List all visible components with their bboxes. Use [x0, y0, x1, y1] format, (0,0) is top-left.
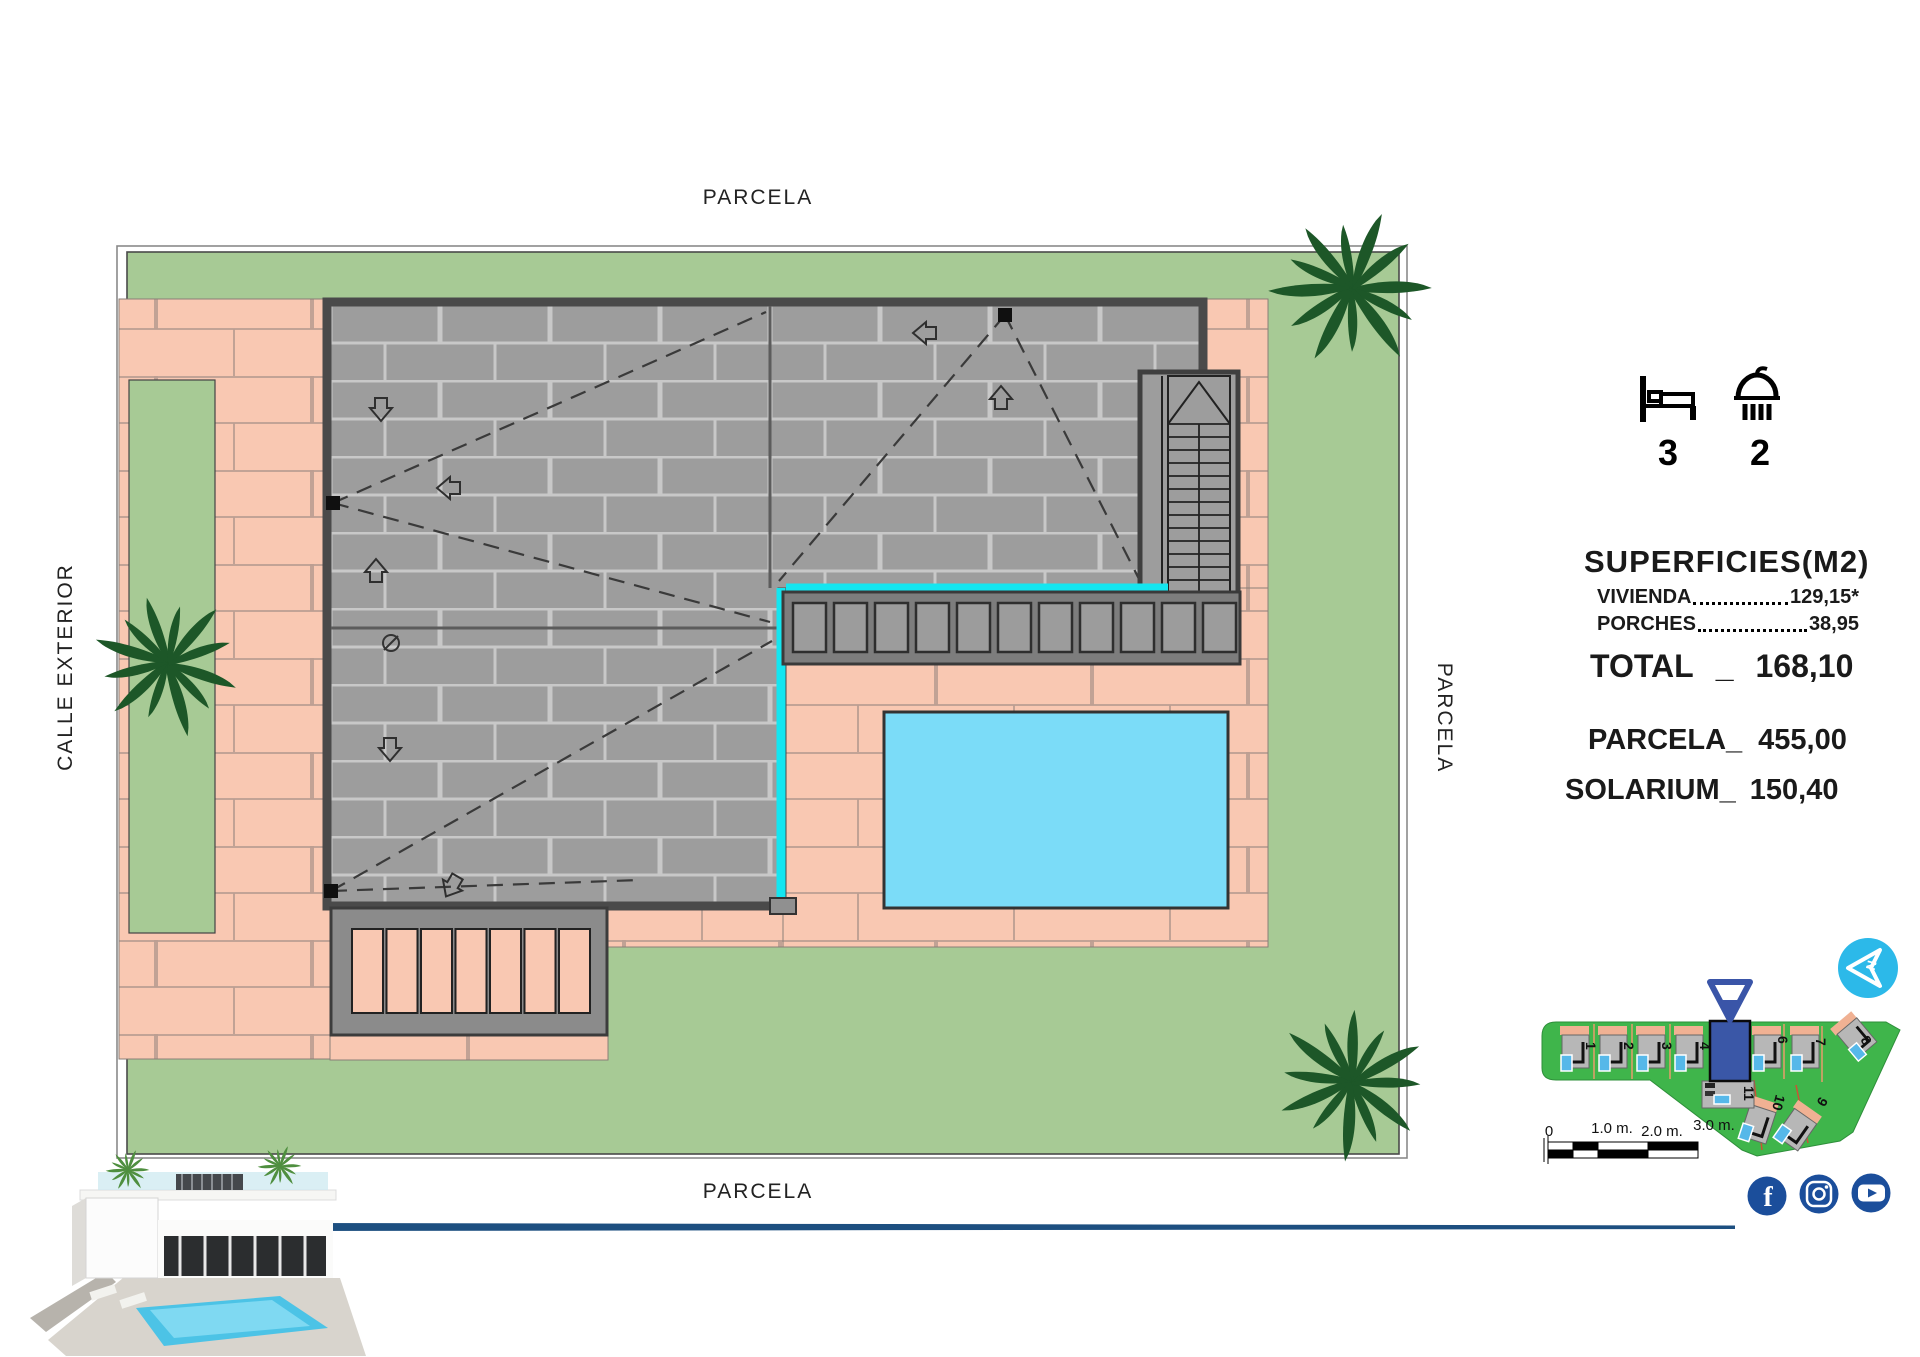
- bed-icon: [1643, 376, 1693, 422]
- svg-text:0: 0: [1545, 1123, 1553, 1140]
- svg-text:2: 2: [1621, 1042, 1637, 1050]
- area-row-label: PORCHES: [1597, 613, 1696, 636]
- porch-beams: [783, 592, 1240, 664]
- area-solarium-row: SOLARIUM_ 150,40: [1565, 774, 1839, 807]
- svg-text:11: 11: [1741, 1086, 1757, 1101]
- area-row-label: VIVIENDA: [1597, 586, 1691, 609]
- villa-render-image: [30, 1146, 366, 1356]
- dotted-leader: [1698, 629, 1807, 632]
- area-row-value: 38,95: [1809, 613, 1859, 636]
- pergola-trellis: [331, 908, 607, 1035]
- total-label: TOTAL: [1590, 648, 1694, 685]
- areas-title: SUPERFICIES(M2): [1584, 544, 1869, 580]
- solarium-value: 150,40: [1750, 774, 1839, 807]
- svg-text:7: 7: [1813, 1038, 1829, 1046]
- parcela-label: PARCELA_: [1588, 724, 1742, 757]
- divider-line: [292, 1223, 1735, 1231]
- parcela-value: 455,00: [1758, 724, 1847, 757]
- svg-text:1: 1: [1583, 1042, 1599, 1050]
- svg-text:3: 3: [1659, 1042, 1675, 1050]
- svg-text:6: 6: [1775, 1036, 1791, 1044]
- bedrooms-count: 3: [1636, 432, 1700, 474]
- social-instagram-icon[interactable]: [1800, 1175, 1839, 1214]
- social-youtube-icon[interactable]: [1852, 1174, 1891, 1213]
- swimming-pool: [884, 712, 1228, 908]
- bathrooms-count: 2: [1728, 432, 1792, 474]
- svg-text:1.0 m.: 1.0 m.: [1591, 1120, 1633, 1137]
- area-row-porches: PORCHES 38,95: [1597, 613, 1859, 636]
- site-label-left: CALLE EXTERIOR: [54, 537, 78, 797]
- svg-text:2.0 m.: 2.0 m.: [1641, 1123, 1683, 1140]
- shower-icon: [1734, 368, 1780, 420]
- staircase: [1140, 372, 1238, 594]
- area-row-value: 129,15*: [1790, 586, 1859, 609]
- svg-text:3.0 m.: 3.0 m.: [1693, 1117, 1735, 1134]
- compass-icon: N: [1838, 938, 1898, 998]
- area-parcela-row: PARCELA_ 455,00: [1588, 724, 1847, 757]
- solarium-label: SOLARIUM_: [1565, 774, 1736, 807]
- keymap-highlighted-plot: [1710, 1021, 1750, 1081]
- site-label-top: PARCELA: [628, 186, 888, 210]
- svg-text:4: 4: [1697, 1042, 1713, 1050]
- dotted-leader: [1693, 602, 1788, 605]
- site-label-bottom: PARCELA: [628, 1180, 888, 1204]
- brochure-page: 1 2 3 4 6 7 8 11 10 9 0: [0, 0, 1920, 1357]
- scale-bar: 0 1.0 m. 2.0 m. 3.0 m.: [1544, 1117, 1735, 1164]
- total-separator: _: [1716, 648, 1734, 685]
- svg-text:f: f: [1763, 1182, 1773, 1213]
- keymap-pin: [1710, 982, 1750, 1020]
- area-total-row: TOTAL _ 168,10: [1590, 648, 1853, 685]
- area-row-vivienda: VIVIENDA 129,15*: [1597, 586, 1859, 609]
- site-label-right: PARCELA: [1432, 588, 1456, 848]
- social-facebook-icon[interactable]: f: [1748, 1177, 1787, 1216]
- total-value: 168,10: [1755, 648, 1853, 685]
